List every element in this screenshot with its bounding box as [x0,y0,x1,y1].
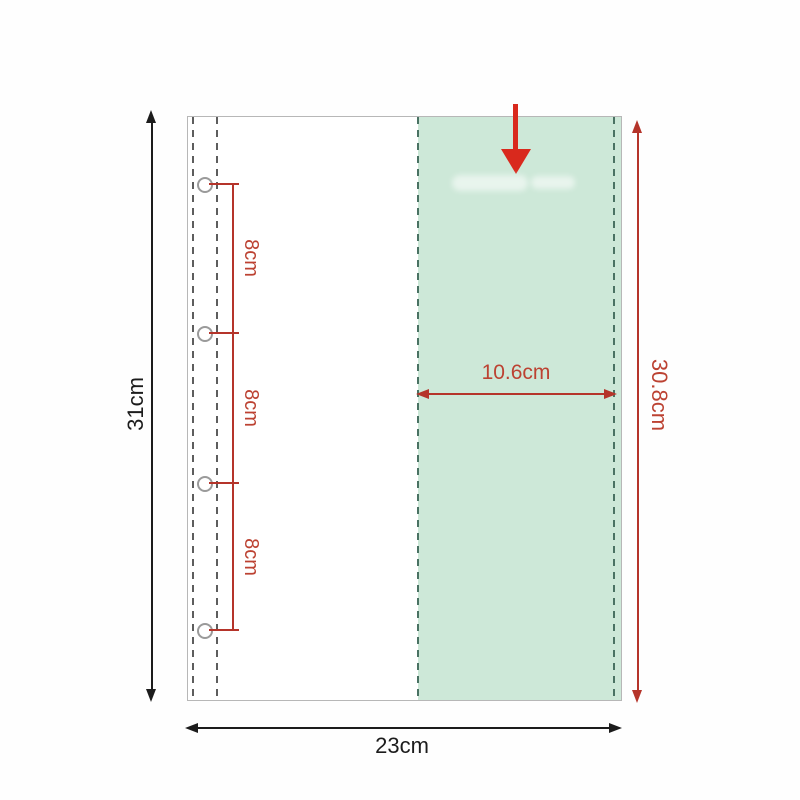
page-height-arrowhead-down-icon [146,689,156,702]
binder-hole-1 [197,177,213,193]
page-width-arrowhead-right-icon [609,723,622,733]
pocket-width-arrow-line [428,393,605,395]
watermark-smudge-right [531,176,575,189]
pocket-right-dash-line [613,117,615,700]
punch-margin-dash-line-outer [192,117,194,700]
pocket-height-arrowhead-down-icon [632,690,642,703]
page-width-arrow-line [197,727,610,729]
binder-hole-3 [197,476,213,492]
hole-spacing-bracket-line [232,184,234,631]
hole-spacing-tick-3 [209,482,239,484]
hole-spacing-tick-2 [209,332,239,334]
hole-spacing-tick-1 [209,183,239,185]
binder-hole-2 [197,326,213,342]
hole-spacing-label-3: 8cm [239,538,262,576]
hole-spacing-label-2: 8cm [239,389,262,427]
page-height-label: 31cm [123,377,149,431]
pocket-left-dash-line [417,117,419,700]
page-width-label: 23cm [375,733,429,759]
pocket-height-label: 30.8cm [646,359,672,431]
binder-hole-4 [197,623,213,639]
hole-spacing-label-1: 8cm [239,239,262,277]
watermark-smudge-left [452,175,528,191]
pocket-area [418,117,621,700]
pocket-width-arrowhead-right-icon [604,389,617,399]
insert-direction-arrow-shaft [513,104,518,150]
pocket-height-arrow-line [637,131,639,691]
pocket-width-label: 10.6cm [482,361,551,385]
dimension-diagram: 8cm 8cm 8cm 31cm 30.8cm 23cm 10.6cm [0,0,800,800]
insert-direction-arrow-icon [501,149,531,174]
page-height-arrow-line [151,121,153,691]
hole-spacing-tick-4 [209,629,239,631]
punch-margin-dash-line-inner [216,117,218,700]
